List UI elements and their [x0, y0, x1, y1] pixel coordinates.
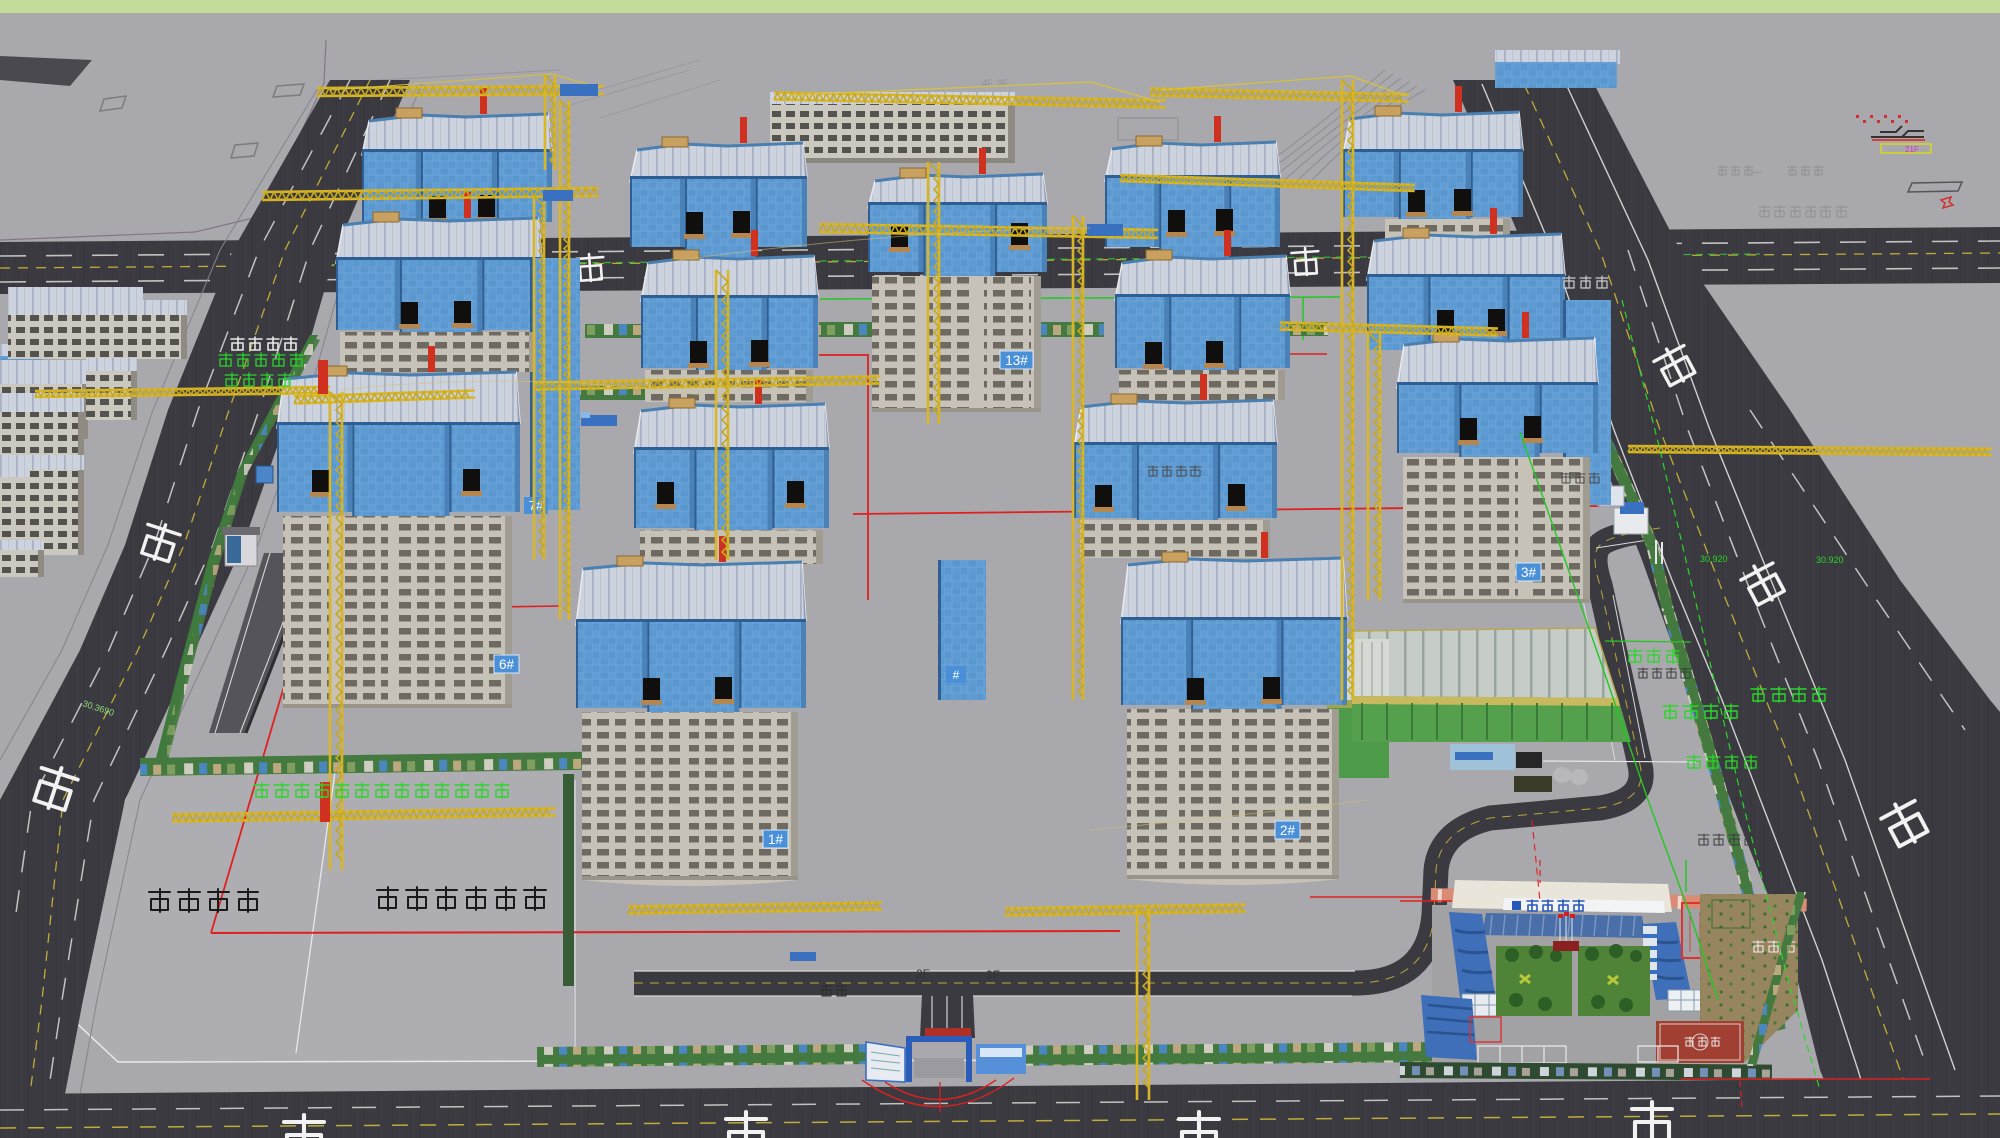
svg-text:30.920: 30.920	[1700, 554, 1728, 564]
svg-text:7#: 7#	[529, 498, 544, 513]
svg-text:3#: 3#	[1521, 565, 1537, 580]
svg-text:13#: 13#	[1005, 353, 1028, 368]
svg-text:30.920: 30.920	[1816, 555, 1844, 565]
svg-text:6#: 6#	[499, 657, 515, 672]
svg-text:2#: 2#	[1280, 823, 1296, 838]
svg-text:21F: 21F	[1905, 145, 1919, 154]
svg-text:#: #	[953, 668, 960, 682]
svg-text:—: —	[1752, 167, 1762, 178]
svg-text:3F: 3F	[986, 968, 1000, 982]
svg-text:2F: 2F	[916, 967, 930, 981]
svg-text:1#: 1#	[768, 832, 784, 847]
